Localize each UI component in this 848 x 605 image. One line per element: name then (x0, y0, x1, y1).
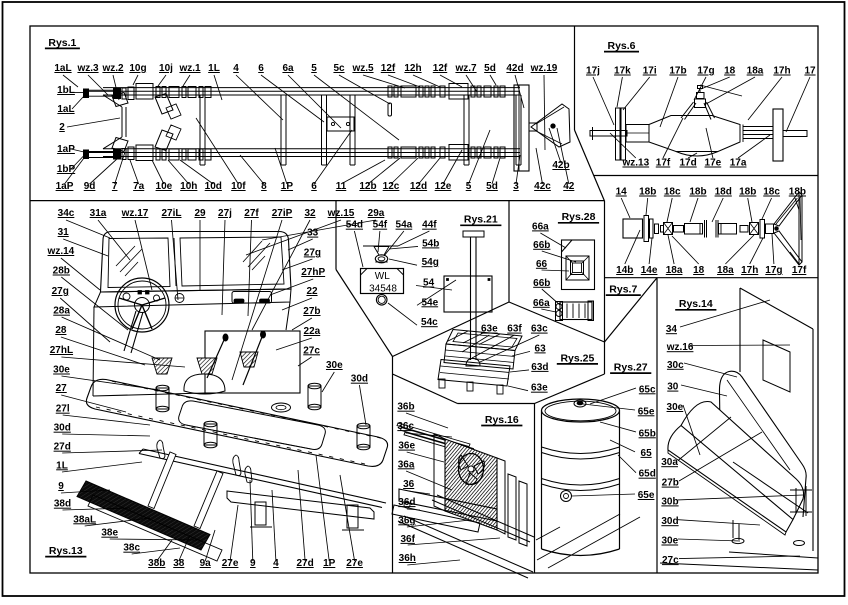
svg-text:66b: 66b (533, 240, 550, 251)
svg-text:36b: 36b (397, 402, 414, 413)
svg-text:18b: 18b (789, 187, 806, 198)
svg-text:36f: 36f (400, 534, 415, 545)
svg-text:9: 9 (58, 481, 64, 492)
svg-text:17j: 17j (586, 66, 600, 77)
svg-text:42c: 42c (534, 181, 551, 192)
svg-text:27iL: 27iL (161, 208, 181, 219)
svg-text:10d: 10d (205, 181, 222, 192)
svg-text:28b: 28b (53, 266, 70, 277)
svg-text:38aL: 38aL (73, 514, 96, 525)
svg-text:38e: 38e (101, 528, 118, 539)
svg-text:18: 18 (693, 265, 705, 276)
svg-text:27: 27 (56, 383, 68, 394)
svg-text:17h: 17h (741, 265, 758, 276)
svg-text:65b: 65b (639, 428, 656, 439)
svg-text:Rys.7: Rys.7 (609, 284, 637, 296)
svg-text:18b: 18b (639, 187, 656, 198)
svg-text:12f: 12f (381, 63, 396, 74)
svg-text:wz.5: wz.5 (351, 63, 374, 74)
svg-text:22: 22 (306, 286, 318, 297)
svg-text:12b: 12b (359, 181, 376, 192)
svg-text:wz.17: wz.17 (121, 208, 149, 219)
svg-text:36a: 36a (398, 459, 415, 470)
svg-text:28: 28 (55, 325, 67, 336)
svg-text:66b: 66b (533, 278, 550, 289)
svg-text:29: 29 (194, 208, 206, 219)
svg-text:1L: 1L (56, 460, 68, 471)
svg-text:17a: 17a (730, 158, 747, 169)
svg-text:27l: 27l (56, 404, 70, 415)
svg-text:63d: 63d (531, 362, 548, 373)
svg-text:42d: 42d (506, 63, 523, 74)
svg-text:27hL: 27hL (50, 345, 73, 356)
svg-text:Rys.16: Rys.16 (485, 414, 519, 426)
svg-text:18a: 18a (666, 265, 683, 276)
svg-text:27j: 27j (218, 208, 232, 219)
svg-text:31: 31 (58, 227, 70, 238)
svg-text:65d: 65d (639, 469, 656, 480)
svg-text:9d: 9d (84, 181, 96, 192)
svg-text:54c: 54c (421, 317, 438, 328)
svg-text:63f: 63f (507, 324, 522, 335)
svg-text:8: 8 (261, 181, 267, 192)
svg-text:1aL: 1aL (57, 104, 74, 115)
svg-text:27c: 27c (303, 345, 320, 356)
svg-text:Rys.28: Rys.28 (562, 211, 596, 223)
svg-text:7a: 7a (133, 181, 145, 192)
svg-text:wz.2: wz.2 (101, 63, 124, 74)
svg-text:66a: 66a (533, 298, 550, 309)
svg-text:12e: 12e (435, 181, 452, 192)
svg-text:5: 5 (311, 63, 317, 74)
svg-text:34: 34 (666, 324, 678, 335)
svg-text:10e: 10e (156, 181, 173, 192)
svg-text:42b: 42b (552, 160, 569, 171)
svg-text:65: 65 (641, 448, 653, 459)
svg-text:30: 30 (667, 382, 679, 393)
svg-text:63: 63 (535, 343, 547, 354)
svg-text:Rys.27: Rys.27 (614, 362, 648, 374)
svg-text:12h: 12h (404, 63, 421, 74)
svg-text:12f: 12f (433, 63, 448, 74)
svg-text:18b: 18b (689, 187, 706, 198)
svg-text:27b: 27b (662, 478, 679, 489)
svg-text:18c: 18c (664, 187, 681, 198)
svg-text:65e: 65e (638, 406, 655, 417)
svg-text:wz.16: wz.16 (666, 342, 694, 353)
svg-text:30c: 30c (667, 360, 684, 371)
svg-text:Rys.1: Rys.1 (48, 37, 76, 49)
svg-text:6: 6 (311, 181, 317, 192)
svg-text:30e: 30e (661, 536, 678, 547)
svg-text:wz.1: wz.1 (178, 63, 201, 74)
svg-text:63e: 63e (531, 383, 548, 394)
svg-text:38c: 38c (123, 543, 140, 554)
svg-text:Rys.21: Rys.21 (464, 214, 498, 226)
svg-text:17e: 17e (705, 158, 722, 169)
svg-text:Rys.25: Rys.25 (560, 352, 594, 364)
svg-text:65c: 65c (639, 384, 656, 395)
svg-text:30e: 30e (53, 365, 70, 376)
svg-text:18a: 18a (747, 66, 764, 77)
svg-text:54b: 54b (422, 238, 439, 249)
svg-text:42: 42 (563, 181, 575, 192)
svg-text:14e: 14e (641, 265, 658, 276)
svg-text:wz.14: wz.14 (47, 246, 75, 257)
svg-text:22a: 22a (304, 326, 321, 337)
svg-text:18: 18 (724, 66, 736, 77)
svg-text:17h: 17h (773, 66, 790, 77)
svg-text:38d: 38d (54, 499, 71, 510)
svg-text:18c: 18c (763, 187, 780, 198)
svg-text:54g: 54g (422, 257, 439, 268)
svg-text:wz.3: wz.3 (76, 63, 99, 74)
svg-text:30e: 30e (326, 360, 343, 371)
svg-text:14b: 14b (616, 265, 633, 276)
svg-text:30b: 30b (661, 496, 678, 507)
svg-text:54e: 54e (421, 297, 438, 308)
svg-text:29a: 29a (368, 208, 385, 219)
svg-text:12c: 12c (383, 181, 400, 192)
svg-text:36: 36 (403, 479, 415, 490)
svg-text:11: 11 (336, 181, 347, 192)
svg-text:27c: 27c (662, 555, 679, 566)
svg-text:17f: 17f (656, 158, 671, 169)
svg-text:27b: 27b (303, 306, 320, 317)
svg-text:wz.7: wz.7 (454, 63, 477, 74)
svg-text:2: 2 (59, 122, 65, 133)
svg-text:WL: WL (375, 271, 390, 282)
svg-text:30d: 30d (351, 374, 368, 385)
svg-text:10f: 10f (231, 181, 246, 192)
svg-text:wz.19: wz.19 (530, 63, 558, 74)
svg-text:1aL: 1aL (54, 63, 71, 74)
svg-text:27g: 27g (304, 247, 321, 258)
svg-text:17g: 17g (765, 265, 782, 276)
svg-text:5c: 5c (333, 63, 345, 74)
svg-text:17g: 17g (697, 66, 714, 77)
svg-text:34548: 34548 (369, 283, 397, 294)
svg-text:36e: 36e (398, 441, 415, 452)
svg-text:31a: 31a (90, 208, 107, 219)
svg-text:27hP: 27hP (301, 267, 325, 278)
svg-text:32: 32 (304, 208, 316, 219)
svg-text:17: 17 (804, 66, 816, 77)
svg-text:10g: 10g (129, 63, 146, 74)
svg-text:6a: 6a (282, 63, 294, 74)
svg-text:30e: 30e (667, 402, 684, 413)
svg-text:38b: 38b (148, 558, 165, 569)
svg-text:10h: 10h (180, 181, 197, 192)
svg-text:27g: 27g (52, 286, 69, 297)
svg-text:Rys.6: Rys.6 (607, 40, 635, 52)
svg-text:34c: 34c (58, 208, 75, 219)
svg-text:65e: 65e (638, 490, 655, 501)
svg-text:27f: 27f (244, 208, 259, 219)
svg-text:17k: 17k (614, 66, 631, 77)
svg-text:wz.15: wz.15 (327, 208, 355, 219)
svg-text:1P: 1P (281, 181, 294, 192)
svg-text:6: 6 (258, 63, 264, 74)
svg-text:36h: 36h (399, 553, 416, 564)
svg-text:27iP: 27iP (272, 208, 293, 219)
svg-text:44f: 44f (422, 220, 437, 231)
svg-text:17i: 17i (643, 66, 657, 77)
svg-text:18a: 18a (717, 265, 734, 276)
svg-text:Rys.14: Rys.14 (679, 298, 713, 310)
svg-text:66a: 66a (532, 221, 549, 232)
svg-text:63c: 63c (531, 324, 548, 335)
svg-text:12d: 12d (410, 181, 427, 192)
svg-text:17f: 17f (792, 265, 807, 276)
svg-text:1aP: 1aP (56, 181, 74, 192)
svg-text:14: 14 (616, 187, 628, 198)
svg-text:30d: 30d (661, 516, 678, 527)
svg-text:30d: 30d (54, 423, 71, 434)
svg-text:1L: 1L (208, 63, 220, 74)
svg-text:5d: 5d (484, 63, 496, 74)
svg-text:54f: 54f (373, 220, 388, 231)
svg-text:18d: 18d (715, 187, 732, 198)
svg-text:28a: 28a (53, 306, 70, 317)
svg-text:Rys.13: Rys.13 (49, 545, 83, 557)
svg-text:4: 4 (233, 63, 239, 74)
svg-text:66: 66 (536, 259, 548, 270)
svg-text:27d: 27d (54, 442, 71, 453)
svg-text:18b: 18b (739, 187, 756, 198)
svg-text:27e: 27e (346, 558, 363, 569)
svg-text:54a: 54a (396, 220, 413, 231)
svg-text:17b: 17b (669, 66, 686, 77)
svg-text:17d: 17d (679, 158, 696, 169)
svg-text:1bL: 1bL (57, 85, 75, 96)
svg-text:10j: 10j (159, 63, 173, 74)
